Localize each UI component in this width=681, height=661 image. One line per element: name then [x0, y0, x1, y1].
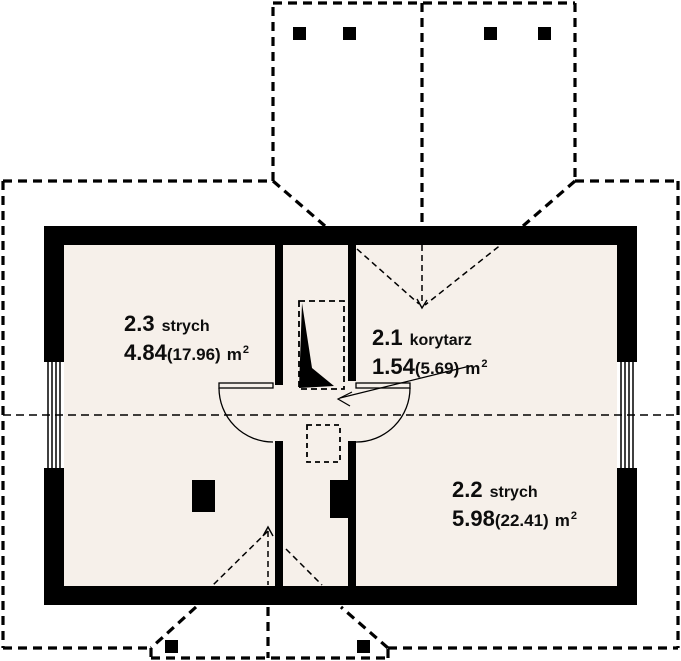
room-name: korytarz: [410, 332, 472, 349]
area-unit-exponent: 2: [571, 510, 577, 522]
floor-plan-canvas: 2.3strych 4.84(17.96)m2 2.1korytarz 1.54…: [0, 0, 681, 661]
room-label-2-3: 2.3strych 4.84(17.96)m2: [124, 310, 249, 364]
area-unit-exponent: 2: [481, 358, 487, 370]
wall-top: [44, 226, 637, 245]
flue-square: [165, 640, 178, 653]
chimney-block-left: [192, 480, 215, 512]
flue-square: [538, 27, 551, 40]
flue-square: [484, 27, 497, 40]
room-label-2-2: 2.2strych 5.98(22.41)m2: [452, 476, 577, 530]
dormer-bottom-outline: [151, 607, 388, 658]
chimney-block-right: [330, 480, 356, 518]
area-gross: (22.41): [495, 511, 549, 530]
floor-plan-drawing: [0, 0, 681, 661]
room-area: 1.54(5.69)m2: [372, 351, 488, 378]
room-title: 2.2strych: [452, 476, 577, 503]
flue-square: [343, 27, 356, 40]
room-title: 2.1korytarz: [372, 324, 488, 351]
area-net: 1.54: [372, 354, 415, 379]
area-net: 4.84: [124, 340, 167, 365]
room-title: 2.3strych: [124, 310, 249, 337]
area-unit: m: [227, 345, 242, 364]
partition-right-upper: [348, 245, 356, 381]
flue-square: [357, 640, 370, 653]
room-name: strych: [490, 484, 538, 501]
area-unit: m: [465, 359, 480, 378]
door-left-leaf: [219, 383, 273, 388]
room-number: 2.1: [372, 325, 403, 350]
area-unit: m: [555, 511, 570, 530]
flue-square: [293, 27, 306, 40]
wall-bottom: [44, 586, 637, 605]
partition-left-lower: [275, 441, 283, 586]
room-number: 2.3: [124, 311, 155, 336]
area-net: 5.98: [452, 506, 495, 531]
room-area: 4.84(17.96)m2: [124, 337, 249, 364]
floor-fill: [44, 226, 637, 605]
dormer-top-outline: [273, 3, 575, 226]
room-number: 2.2: [452, 477, 483, 502]
room-area: 5.98(22.41)m2: [452, 503, 577, 530]
partition-left-upper: [275, 245, 283, 385]
room-label-2-1: 2.1korytarz 1.54(5.69)m2: [372, 324, 488, 378]
area-unit-exponent: 2: [243, 344, 249, 356]
area-gross: (5.69): [415, 359, 459, 378]
area-gross: (17.96): [167, 345, 221, 364]
room-name: strych: [162, 318, 210, 335]
